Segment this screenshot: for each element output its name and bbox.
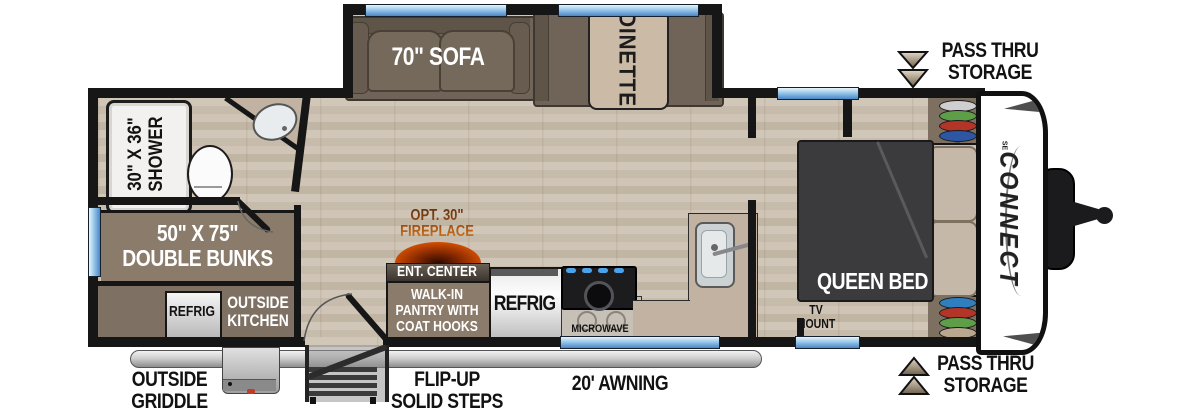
- step-foot-right: [370, 397, 376, 404]
- kitchen-faucet-base: [711, 244, 718, 251]
- stove-burner: [584, 281, 614, 311]
- floorplan-canvas: 30" X 36" SHOWER 50" X 75" DOUBLE BUNKS …: [0, 0, 1200, 417]
- window-kitchen-bottom: [560, 336, 720, 349]
- wall-outside-kitchen-divider: [98, 281, 294, 286]
- queen-bed-label: QUEEN BED: [803, 268, 942, 295]
- refrig-label: REFRIG: [493, 292, 556, 316]
- pass-thru-bottom-line2: STORAGE: [925, 375, 1047, 397]
- pantry-label-line3: COAT HOOKS: [394, 319, 480, 335]
- window-bunks-left: [88, 207, 101, 277]
- outside-griddle: [222, 347, 280, 394]
- cap-swoosh-top: [1003, 99, 1040, 116]
- toilet: [187, 145, 233, 203]
- pantry-label-line1: WALK-IN: [394, 287, 480, 303]
- window-bedroom-top: [777, 87, 859, 100]
- hitch-coupler: [1064, 199, 1100, 229]
- window-slideout-sofa: [365, 4, 507, 17]
- cap-swoosh-bottom: [1002, 329, 1039, 346]
- pass-thru-bottom-line1: PASS THRU: [925, 353, 1047, 375]
- stove-flame-4: [614, 268, 624, 273]
- outside-kitchen-label-line1: OUTSIDE: [225, 294, 291, 312]
- shower-label-line1: 30" X 36": [125, 108, 146, 200]
- pass-thru-storage-top-label: PASS THRU STORAGE: [938, 40, 1042, 84]
- kitchen-counter-run: [633, 300, 690, 338]
- window-bedroom-bottom: [795, 336, 860, 349]
- pass-thru-arrows-down-icon: [897, 50, 929, 90]
- shower-label-line2: SHOWER: [146, 108, 167, 200]
- bed-pillow-top: [928, 146, 978, 222]
- wall-slideout-right: [712, 4, 722, 98]
- wall-bath-bottom: [98, 197, 240, 205]
- outside-griddle-line2: GRIDDLE: [121, 391, 218, 413]
- pantry-label-line2: PANTRY WITH: [394, 303, 480, 319]
- wall-slideout-left: [343, 4, 353, 98]
- awning-label: 20' AWNING: [565, 373, 674, 395]
- wall-bedroom-partition-lower: [748, 200, 756, 337]
- wall-tv-stub: [797, 318, 804, 337]
- sofa-label: 70" SOFA: [371, 43, 505, 72]
- wall-closet-stub: [843, 98, 852, 137]
- entry-door-swing-arc: [300, 288, 395, 346]
- wall-bottom-left: [88, 337, 305, 347]
- fireplace-label-line2: FIREPLACE: [393, 224, 480, 240]
- microwave-label: MICROWAVE: [565, 323, 636, 335]
- step-tread: [309, 391, 377, 396]
- bath-faucet-dot: [282, 126, 287, 131]
- wall-bedroom-partition-upper: [748, 98, 756, 138]
- bunks-label-line2: DOUBLE BUNKS: [120, 246, 275, 271]
- pass-thru-top-line1: PASS THRU: [938, 40, 1042, 62]
- brand-logo: CONNECT: [994, 146, 1023, 293]
- tv-mount-label-line1: TV: [794, 303, 838, 317]
- bathroom-door-swing-arc: [235, 196, 280, 238]
- outside-griddle-label: OUTSIDE GRIDDLE: [121, 369, 218, 413]
- griddle-knob-dark: [228, 382, 232, 386]
- outside-griddle-line1: OUTSIDE: [121, 369, 218, 391]
- outside-kitchen-label-line2: KITCHEN: [225, 312, 291, 330]
- steps-label-line2: SOLID STEPS: [384, 391, 510, 413]
- brand-sub-logo: SE: [1001, 138, 1008, 154]
- outside-kitchen-label: OUTSIDE KITCHEN: [225, 294, 291, 330]
- ent-center-label: ENT. CENTER: [394, 264, 480, 280]
- fireplace-label-line1: OPT. 30": [393, 208, 480, 224]
- steps-label-line1: FLIP-UP: [384, 369, 510, 391]
- dinette-bench-left: [533, 12, 594, 107]
- stove-flame-3: [598, 268, 608, 273]
- pass-thru-storage-bottom-label: PASS THRU STORAGE: [925, 353, 1047, 397]
- wall-top-left: [88, 88, 353, 98]
- flip-up-steps-label: FLIP-UP SOLID STEPS: [384, 369, 510, 413]
- stove-flame-1: [566, 268, 576, 273]
- step-foot-left: [310, 397, 316, 404]
- griddle-knob-red: [247, 389, 255, 394]
- stove-flame-2: [582, 268, 592, 273]
- step-tread: [309, 383, 377, 388]
- pass-thru-top-line2: STORAGE: [938, 62, 1042, 84]
- wardrobe-disc: [939, 130, 977, 142]
- dinette-label: DINETTE: [614, 10, 641, 109]
- outside-refrig-label: REFRIG: [167, 304, 217, 320]
- fireplace-label: OPT. 30" FIREPLACE: [393, 208, 480, 240]
- refrigerator-vent: [491, 269, 558, 276]
- shower-label: 30" X 36" SHOWER: [125, 108, 167, 200]
- hitch-ball-tip: [1096, 207, 1113, 224]
- toilet-seat-line: [194, 186, 222, 188]
- dinette-bench-left-back: [535, 14, 549, 101]
- window-slideout-dinette: [558, 4, 699, 17]
- pantry-label: WALK-IN PANTRY WITH COAT HOOKS: [394, 287, 480, 335]
